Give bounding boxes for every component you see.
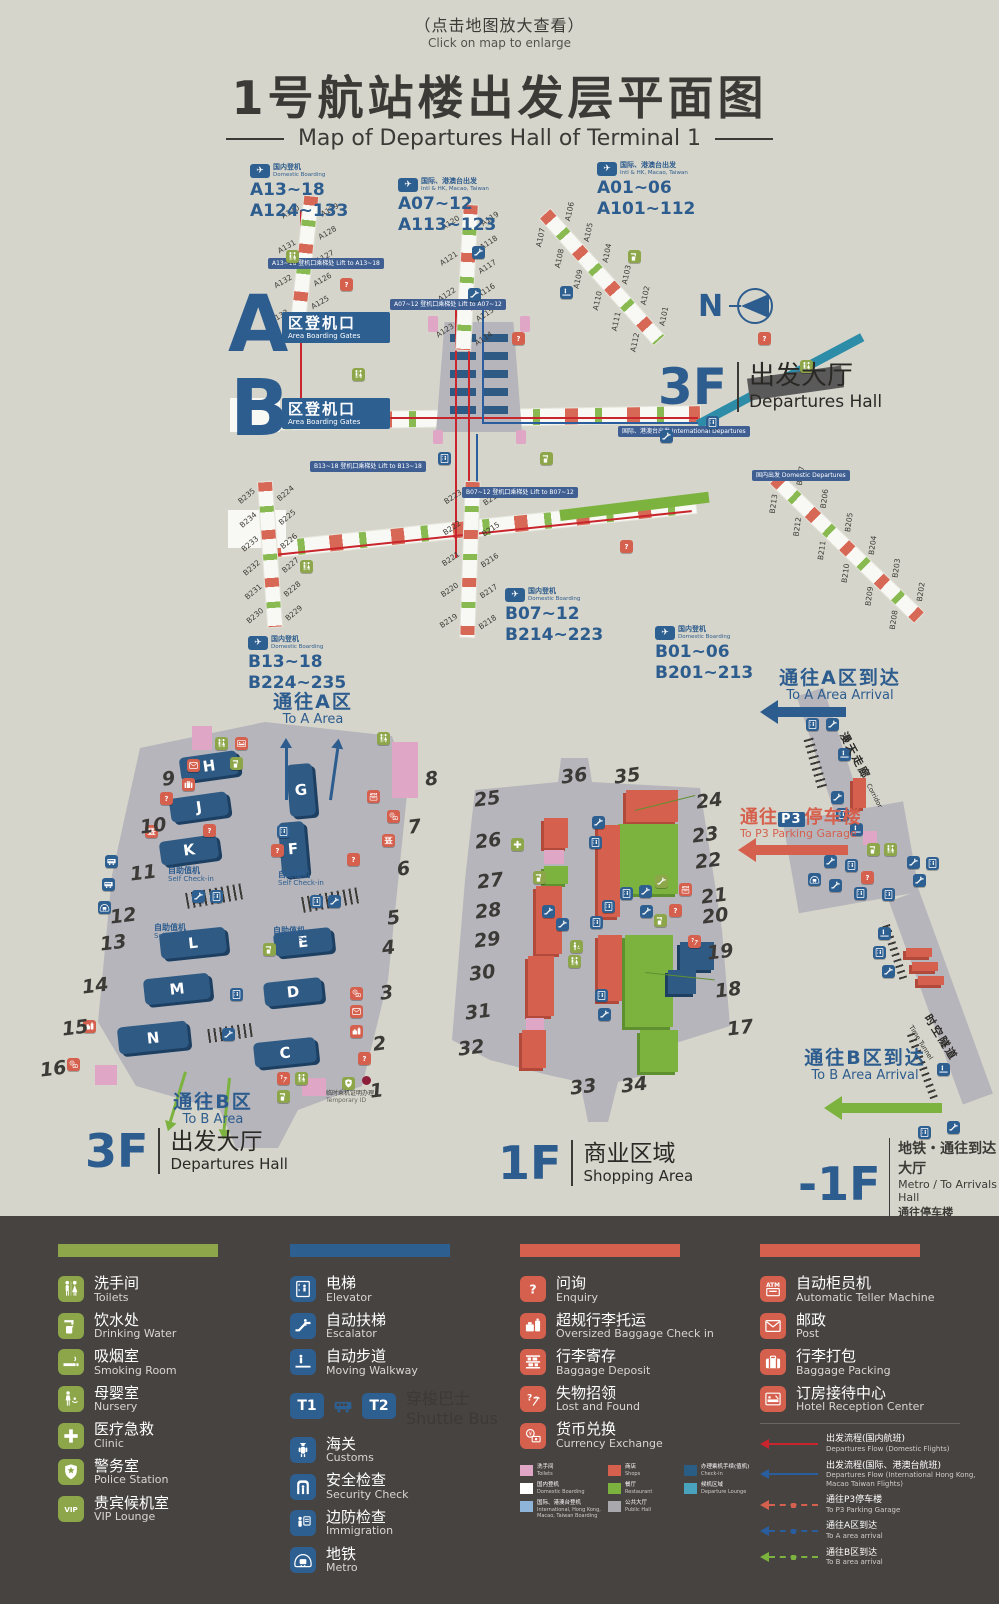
svg-text:?: ? [276, 847, 280, 855]
shop-block [544, 866, 568, 884]
poi-number: 34 [620, 1072, 649, 1097]
map-facility-icon [300, 560, 313, 573]
flow-line-international [482, 422, 698, 424]
gate-label: B223 [442, 488, 463, 506]
gate-label: A114 [473, 330, 494, 348]
click-hint-en: Click on map to enlarge [0, 36, 999, 50]
map-facility-icon [913, 874, 926, 887]
map-facility-icon [105, 855, 118, 868]
map-facility-icon [235, 737, 248, 750]
poi-number: 6 [396, 857, 412, 880]
poi-number: 30 [468, 960, 497, 985]
title-rule-left [226, 138, 284, 140]
svg-text:?: ? [763, 335, 767, 343]
flow-legend-row: 出发流程(国内航班)Departures Flow (Domestic Flig… [760, 1434, 978, 1453]
flow-legend-row: 通往B区到达To B area arrival [760, 1548, 978, 1567]
svg-text:?: ? [363, 1055, 367, 1063]
legend-item: 医疗急救Clinic [58, 1421, 276, 1450]
map-facility-icon [328, 895, 341, 908]
map-facility-icon: ? [758, 332, 771, 345]
direction-ribbon: B13~18 登机口乘梯处 Lift to B13~18 [310, 461, 426, 472]
legend-colorbar-blue [290, 1244, 450, 1257]
legend-icon: ? [520, 1386, 546, 1412]
map-facility-icon [926, 857, 939, 870]
gate-label: B219 [438, 612, 459, 630]
map-facility-icon [377, 732, 390, 745]
legend-icon [290, 1313, 316, 1339]
area-color-swatch: 公共大厅Public Hall [608, 1500, 684, 1519]
gate-label: B208 [887, 610, 899, 631]
legend-item: 饮水处Drinking Water [58, 1312, 276, 1341]
map-facility-icon [589, 836, 602, 849]
map-facility-icon [806, 718, 819, 731]
legend-icon [520, 1349, 546, 1375]
page-subtitle-text: Map of Departures Hall of Terminal 1 [298, 126, 701, 151]
map-facility-icon: ? [358, 1052, 371, 1065]
map-facility-icon [556, 918, 569, 931]
gate-label: B212 [792, 517, 804, 538]
gate-label: B205 [843, 512, 855, 533]
map-facility-icon [350, 1025, 363, 1038]
legend-icon [58, 1313, 84, 1339]
gate-label: B224 [275, 483, 296, 502]
map-facility-icon: ? [277, 1072, 290, 1085]
legend-item: 安全检查Security Check [290, 1472, 508, 1501]
poi-number: 5 [386, 906, 402, 929]
poi-number: 3 [379, 981, 395, 1004]
poi-number: 9 [161, 767, 177, 790]
map-facility-icon [829, 879, 842, 892]
map-facility-icon: ? [271, 844, 284, 857]
poi-number: 31 [464, 999, 493, 1024]
area-a-sign: 区登机口Area Boarding Gates [282, 312, 390, 343]
compass-n-label: N [698, 289, 723, 324]
compass-needle-icon [729, 286, 775, 326]
map-facility-icon [831, 791, 844, 804]
t1-badge: T1 [290, 1393, 324, 1419]
legend-item: 行李打包Baggage Packing [760, 1348, 978, 1377]
map-facility-icon [878, 927, 891, 940]
poi-number: 11 [129, 860, 158, 885]
poi-number: 35 [613, 763, 642, 788]
legend-colorbar-green [58, 1244, 218, 1257]
poi-number: 20 [701, 903, 730, 928]
gate-group-a07: ✈ 国际、港澳台出发Intl & HK, Macao, Taiwan A07~1… [398, 178, 548, 235]
map-facility-icon [639, 885, 652, 898]
pier-b-west: B235B234B233B232B231B230 B224B225B226B22… [223, 479, 317, 630]
detail-map-1f[interactable]: ATM?? 2526272829303132333435362423222120… [430, 730, 740, 1210]
floor-label-3f-top: 3F 出发大厅 Departures Hall [658, 362, 882, 412]
gate-group-b07: ✈ 国内登机Domestic Boarding B07~12 B214~223 [505, 588, 655, 645]
poi-number: 28 [474, 898, 503, 923]
svg-text:VIP: VIP [64, 1505, 77, 1514]
poi-dot [362, 1076, 371, 1085]
legend-icon [290, 1510, 316, 1536]
gate-label: A112 [628, 332, 641, 353]
page-subtitle: Map of Departures Hall of Terminal 1 [0, 126, 999, 151]
map-facility-icon: ? [620, 540, 633, 553]
map-facility-icon: ? [203, 824, 216, 837]
map-facility-icon [882, 888, 895, 901]
legend-item: VIP 贵宾候机室VIP Lounge [58, 1495, 276, 1524]
legend-colorbar-red2 [760, 1244, 920, 1257]
gate-label: A109 [571, 269, 584, 290]
map-facility-icon: ¥ [67, 1058, 80, 1071]
gate-group-b13: ✈ 国内登机Domestic Boarding B13~18 B224~235 [248, 636, 398, 693]
svg-text:?: ? [345, 281, 349, 289]
map-facility-icon: ATM [367, 790, 380, 803]
self-checkin-label: 自助值机Self Check-in [154, 923, 200, 940]
t2-badge: T2 [362, 1393, 396, 1419]
gate-label: B206 [819, 489, 831, 510]
gate-label: B210 [839, 563, 851, 584]
legend-item: 地铁Metro [290, 1546, 508, 1575]
gate-label: B232 [241, 558, 262, 577]
legend-colorbar-red [520, 1244, 680, 1257]
map-facility-icon [592, 816, 605, 829]
area-color-swatch: 商店Shops [608, 1464, 684, 1477]
map-facility-icon [598, 1008, 611, 1021]
flow-legend-row: 通往P3停车楼To P3 Parking Garage [760, 1495, 978, 1514]
svg-text:¥: ¥ [391, 813, 393, 817]
area-color-swatch: 餐厅Restaurant [608, 1482, 684, 1495]
legend-item: 警务室Police Station [58, 1458, 276, 1487]
shuttle-bus-icon [330, 1396, 356, 1416]
map-facility-icon [192, 890, 205, 903]
svg-text:?: ? [529, 1282, 536, 1297]
gate-label: A103 [620, 264, 633, 285]
poi-number: 4 [381, 936, 397, 959]
map-facility-icon: ¥ [387, 810, 400, 823]
legend-item: 超规行李托运Oversized Baggage Check in [520, 1312, 738, 1341]
gate-label: B216 [479, 551, 500, 569]
poi-number: 16 [39, 1056, 68, 1081]
area-color-key: 洗手间Toilets 商店Shops 办理乘机手续(值机)Check-in 国内… [520, 1464, 738, 1519]
map-facility-icon [210, 890, 223, 903]
svg-text:?: ? [165, 795, 169, 803]
map-facility-icon [230, 988, 243, 1001]
legend-icon [520, 1313, 546, 1339]
gate-group-a01: ✈ 国际、港澳台出发Intl & HK, Macao, Taiwan A01~0… [597, 162, 747, 219]
gate-label: B226 [278, 531, 299, 550]
map-facility-icon: ? [512, 332, 525, 345]
gate-label: A128 [317, 224, 338, 242]
map-block [95, 1065, 117, 1085]
map-facility-icon [277, 1090, 290, 1103]
legend-item: 边防检查Immigration [290, 1509, 508, 1538]
poi-number: 26 [474, 828, 503, 853]
map-facility-icon [187, 759, 200, 772]
airplane-icon: ✈ [597, 162, 617, 176]
map-facility-icon [640, 905, 653, 918]
legend-icon [290, 1276, 316, 1302]
gate-label: A105 [582, 222, 595, 243]
map-facility-icon [867, 843, 880, 856]
floor-label-3f: 3F 出发大厅 Departures Hall [85, 1128, 288, 1174]
gate-group-a13: ✈ 国内登机Domestic Boarding A13~18 A124~133 [250, 164, 400, 221]
gate-label: B228 [282, 580, 303, 599]
map-block [192, 726, 212, 750]
legend-item: 邮政Post [760, 1312, 978, 1341]
to-a-arrival-label: 通往A区到达To A Area Arrival [750, 668, 930, 703]
legend-item: ATM 自动柜员机Automatic Teller Machine [760, 1275, 978, 1304]
gate-label: B220 [439, 581, 460, 599]
legend-icon [58, 1349, 84, 1375]
svg-text:?: ? [208, 827, 212, 835]
gate-label: A108 [552, 248, 565, 269]
legend-icon [290, 1547, 316, 1573]
shop-block [625, 935, 673, 1027]
map-facility-icon [215, 737, 228, 750]
airplane-icon: ✈ [398, 178, 418, 192]
terminal1-departures-map: （点击地图放大查看） Click on map to enlarge 1号航站楼… [0, 0, 999, 1604]
poi-number: 32 [457, 1035, 486, 1060]
map-facility-icon [907, 856, 920, 869]
airplane-icon: ✈ [248, 636, 268, 650]
self-checkin-label: 自助值机Self Check-in [168, 866, 214, 883]
legend-icon [760, 1349, 786, 1375]
poi-number: 24 [695, 788, 724, 813]
gate-label: B234 [237, 510, 258, 529]
title-rule-right [715, 138, 773, 140]
map-facility-icon: ATM [679, 883, 692, 896]
gate-label: B204 [867, 535, 879, 556]
poi-number: 27 [476, 868, 505, 893]
gate-label: A110 [590, 290, 603, 311]
page-title: 1号航站楼出发层平面图 [0, 62, 999, 128]
flow-legend-row: 出发流程(国际、港澳台航班)Departures Flow (Internati… [760, 1461, 978, 1489]
map-facility-icon [570, 940, 583, 953]
map-facility-icon [342, 1077, 355, 1090]
legend-icon [58, 1423, 84, 1449]
map-facility-icon: ¥ [350, 987, 363, 1000]
map-facility-icon [286, 250, 299, 263]
poi-number: 33 [569, 1074, 598, 1099]
map-block [918, 976, 944, 985]
legend-icon [760, 1386, 786, 1412]
legend-icon: ? [520, 1276, 546, 1302]
gate-label: A101 [658, 306, 671, 327]
shop-block [640, 1030, 678, 1072]
gate-label: A104 [601, 243, 614, 264]
map-facility-icon [277, 825, 290, 838]
map-facility-icon: ? [861, 871, 874, 884]
floor-label-1f: 1F 商业区域 Shopping Area [498, 1140, 693, 1186]
map-facility-icon [873, 946, 886, 959]
map-facility-icon [568, 955, 581, 968]
map-facility-icon [595, 989, 608, 1002]
map-facility-icon [382, 834, 395, 847]
flow-divider [760, 1423, 960, 1424]
legend-item: ? 问询Enquiry [520, 1275, 738, 1304]
map-facility-icon [602, 900, 615, 913]
svg-text:ATM: ATM [682, 885, 690, 889]
gate-label: A111 [609, 311, 622, 332]
map-facility-icon [884, 843, 897, 856]
gate-label: B235 [236, 486, 257, 505]
legend-icon [58, 1276, 84, 1302]
map-facility-icon [706, 416, 719, 429]
area-b-letter: B [230, 370, 289, 448]
map-facility-icon [533, 871, 546, 884]
map-facility-icon [263, 943, 276, 956]
direction-ribbon: 国内出发 Domestic Departures [752, 470, 850, 481]
poi-number: 19 [706, 939, 735, 964]
flow-legend-row: 通往A区到达To A area arrival [760, 1521, 978, 1540]
gate-label: B222 [441, 519, 462, 537]
compass: N [698, 286, 775, 326]
svg-text:?: ? [674, 907, 678, 915]
legend-icon: ¥ [520, 1423, 546, 1449]
map-facility-icon [660, 430, 673, 443]
pink-block [433, 430, 443, 444]
to-b-area-label: 通往B区To B Area [158, 1092, 268, 1127]
map-facility-icon [947, 1121, 960, 1134]
gate-label: B233 [239, 534, 260, 553]
legend-item: 洗手间Toilets [58, 1275, 276, 1304]
map-facility-icon [310, 895, 323, 908]
shop-block [544, 850, 564, 864]
map-facility-icon: ? [347, 853, 360, 866]
area-a-letter: A [228, 286, 288, 364]
svg-text:?: ? [625, 543, 629, 551]
svg-text:?: ? [527, 1393, 532, 1403]
map-facility-icon [824, 855, 837, 868]
p3-badge: P3 [778, 812, 805, 827]
legend-col-services: ? 问询Enquiry 超规行李托运Oversized Baggage Chec… [520, 1244, 738, 1519]
legend-item: ? 失物招领Lost and Found [520, 1385, 738, 1414]
pier-b-mid: B223B222B221B220B219 B214B215B216B217B21… [425, 481, 514, 639]
gate-label: B221 [440, 550, 461, 568]
poi-number: 18 [714, 977, 743, 1002]
direction-ribbon: B07~12 登机口乘梯处 Lift to B07~12 [462, 487, 578, 498]
map-facility-icon [540, 452, 553, 465]
map-facility-icon [854, 887, 867, 900]
to-b-arrival-label: 通往B区到达To B Area Arrival [775, 1048, 955, 1083]
legend-col-commercial: ATM 自动柜员机Automatic Teller Machine 邮政Post… [760, 1244, 978, 1574]
gate-label: B209 [863, 587, 875, 608]
poi-number: 7 [407, 815, 423, 838]
poi-number: 23 [691, 822, 720, 847]
gate-label: B213 [768, 494, 780, 515]
poi-number: 29 [473, 927, 502, 952]
pink-block [516, 430, 526, 444]
map-facility-icon [350, 1005, 363, 1018]
map-facility-icon [230, 757, 243, 770]
shop-block [668, 970, 696, 994]
gate-label: B203 [891, 558, 903, 579]
svg-text:¥: ¥ [354, 990, 356, 994]
airplane-icon: ✈ [250, 164, 270, 178]
gate-label: B230 [244, 606, 265, 625]
gate-label: B229 [284, 604, 305, 623]
gate-label: A106 [563, 201, 576, 222]
detail-map-3f[interactable]: HJKGFLMNEDC 自助值机Self Check-in 自助值机Self C… [40, 690, 440, 1190]
legend-item: 吸烟室Smoking Room [58, 1348, 276, 1377]
area-color-swatch: 洗手间Toilets [520, 1464, 608, 1477]
map-facility-icon [352, 368, 365, 381]
self-checkin-label: 自助值机Self Check-in [278, 870, 324, 887]
overview-map-3f[interactable]: A130A131A132A133 A129A128A127A126A125A12… [0, 158, 999, 698]
poi-number: 25 [473, 786, 502, 811]
map-facility-icon [655, 875, 668, 888]
legend-item: ¥ 货币兑换Currency Exchange [520, 1421, 738, 1450]
svg-text:?: ? [866, 874, 870, 882]
legend-icon [290, 1474, 316, 1500]
area-b-sign: 区登机口Area Boarding Gates [282, 398, 390, 429]
poi-number: 22 [694, 848, 723, 873]
svg-text:?: ? [517, 335, 521, 343]
map-facility-icon [654, 914, 667, 927]
map-block [392, 742, 418, 798]
map-facility-icon [590, 916, 603, 929]
area-color-swatch: 国际、港澳台登机International, Hong Kong, Macao,… [520, 1500, 608, 1519]
poi-number: 10 [139, 813, 168, 838]
gate-label: B217 [478, 582, 499, 600]
to-a-arrow [280, 738, 292, 800]
shop-block [528, 956, 554, 1016]
gate-label: B211 [815, 540, 827, 561]
legend-icon: ATM [760, 1276, 786, 1302]
svg-text:ATM: ATM [370, 792, 378, 796]
svg-text:¥: ¥ [71, 1061, 73, 1065]
legend-icon [290, 1437, 316, 1463]
map-facility-icon [182, 778, 195, 791]
map-facility-icon [472, 246, 485, 259]
poi-number: 36 [560, 763, 589, 788]
legend-item: 母婴室Nursery [58, 1385, 276, 1414]
legend-icon [290, 1349, 316, 1375]
to-p3-label: 通往P3停车楼 To P3 Parking Garage [740, 808, 862, 840]
shop-block [522, 1030, 546, 1068]
legend-icon [760, 1313, 786, 1339]
map-facility-icon [845, 859, 858, 872]
area-color-swatch: 办理乘机手续(值机)Check-in [684, 1464, 764, 1477]
legend-item: 电梯Elevator [290, 1275, 508, 1304]
gate-label: B218 [477, 613, 498, 631]
legend-col-transport: 电梯Elevator 自动扶梯Escalator 自动步道Moving Walk… [290, 1244, 508, 1582]
poi-number: 12 [109, 903, 138, 928]
direction-ribbon: A07~12 登机口乘梯处 Lift to A07~12 [390, 299, 506, 310]
map-block [912, 962, 938, 971]
legend-item-shuttle: T1 T2 穿梭巴士Shuttle Bus [290, 1385, 508, 1428]
legend-icon [58, 1386, 84, 1412]
gate-label: A102 [639, 285, 652, 306]
airplane-icon: ✈ [505, 588, 525, 602]
legend-item: 海关Customs [290, 1436, 508, 1465]
map-facility-icon: ? [688, 935, 701, 948]
map-facility-icon: ? [669, 904, 682, 917]
legend-item: 订房接待中心Hotel Reception Center [760, 1385, 978, 1414]
legend-item: 自动扶梯Escalator [290, 1312, 508, 1341]
click-hint-zh: （点击地图放大查看） [0, 12, 999, 36]
svg-text:?: ? [280, 1075, 283, 1081]
gate-label: A121 [438, 249, 459, 267]
detail-map-minus1f[interactable]: ? 通往A区到达To A Area Arrival 通往P3停车楼 To P3 … [740, 650, 999, 1205]
map-facility-icon [826, 718, 839, 731]
legend-footer: 洗手间Toilets 饮水处Drinking Water 吸烟室Smoking … [0, 1216, 999, 1604]
map-facility-icon [560, 286, 573, 299]
legend-item: 行李寄存Baggage Deposit [520, 1348, 738, 1377]
gate-label: B202 [915, 581, 927, 602]
map-facility-icon [222, 1028, 235, 1041]
gate-label: A123 [434, 322, 455, 340]
map-facility-icon: ? [340, 278, 353, 291]
gate-label: B231 [242, 582, 263, 601]
pink-block [520, 316, 530, 332]
temporary-id-note: 临时乘机证明办理Temporary ID [326, 1090, 374, 1104]
shop-block [544, 818, 568, 848]
